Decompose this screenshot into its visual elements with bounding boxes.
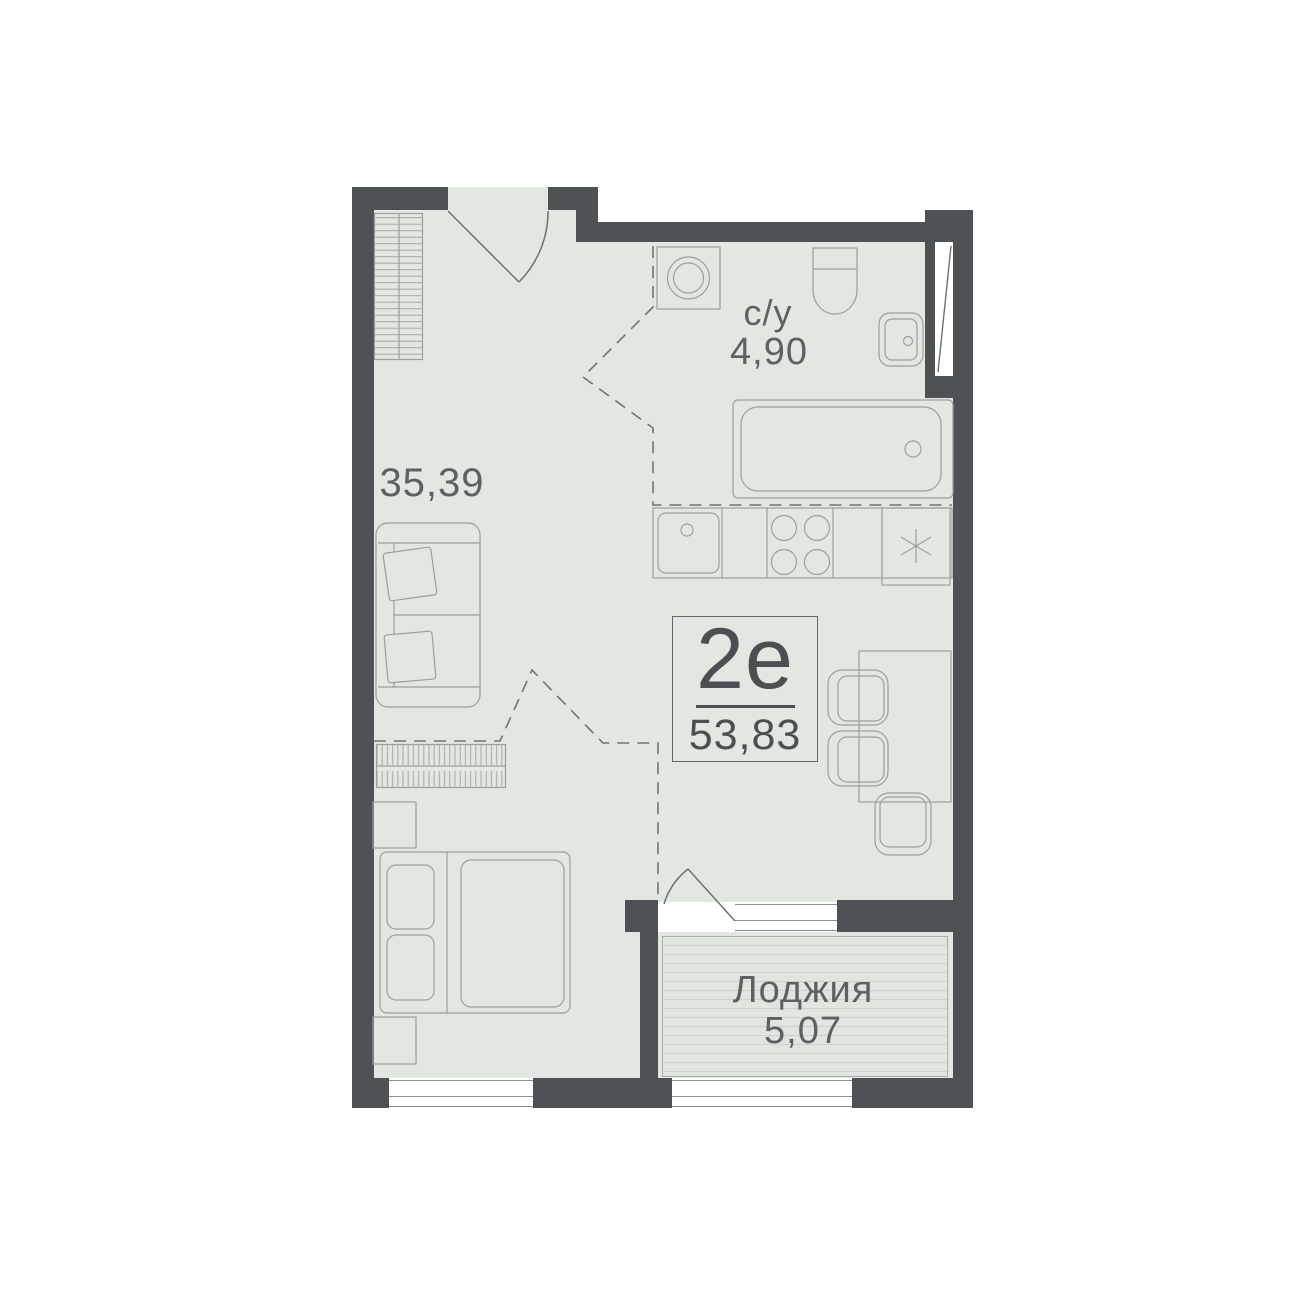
bathroom-name-label: с/у <box>708 293 828 333</box>
loggia-area-label: 5,07 <box>703 1010 903 1052</box>
unit-total-area-label: 53,83 <box>689 713 802 757</box>
sofa-pillow-icon <box>383 547 437 601</box>
kitchen-counter-icon <box>653 508 952 585</box>
fridge-snowflake-icon <box>901 529 931 563</box>
shaft-diagonal-line <box>938 246 951 372</box>
entry-door-icon <box>448 211 548 282</box>
unit-label-box: 2е 53,83 <box>672 616 818 762</box>
living-room-area-label: 35,39 <box>362 462 502 504</box>
dining-table-icon <box>859 651 951 802</box>
plan-linework <box>0 0 1299 1299</box>
unit-label-divider <box>696 705 795 708</box>
bathroom-sink-icon <box>879 313 923 366</box>
sofa-icon <box>376 523 480 707</box>
dresser-icon <box>377 745 506 788</box>
floor-plan-canvas: 35,39 с/у 4,90 Лоджия 5,07 2е 53,83 <box>0 0 1299 1299</box>
unit-type-label: 2е <box>696 615 794 703</box>
loggia-name-label: Лоджия <box>703 969 903 1011</box>
wardrobe-icon <box>375 214 423 360</box>
chair-icon <box>828 670 931 855</box>
bathroom-area-label: 4,90 <box>709 332 829 372</box>
sofa-pillow-icon <box>384 631 436 683</box>
bed-icon <box>380 852 570 1013</box>
bathtub-icon <box>733 400 953 498</box>
balcony-door-icon <box>664 869 735 921</box>
